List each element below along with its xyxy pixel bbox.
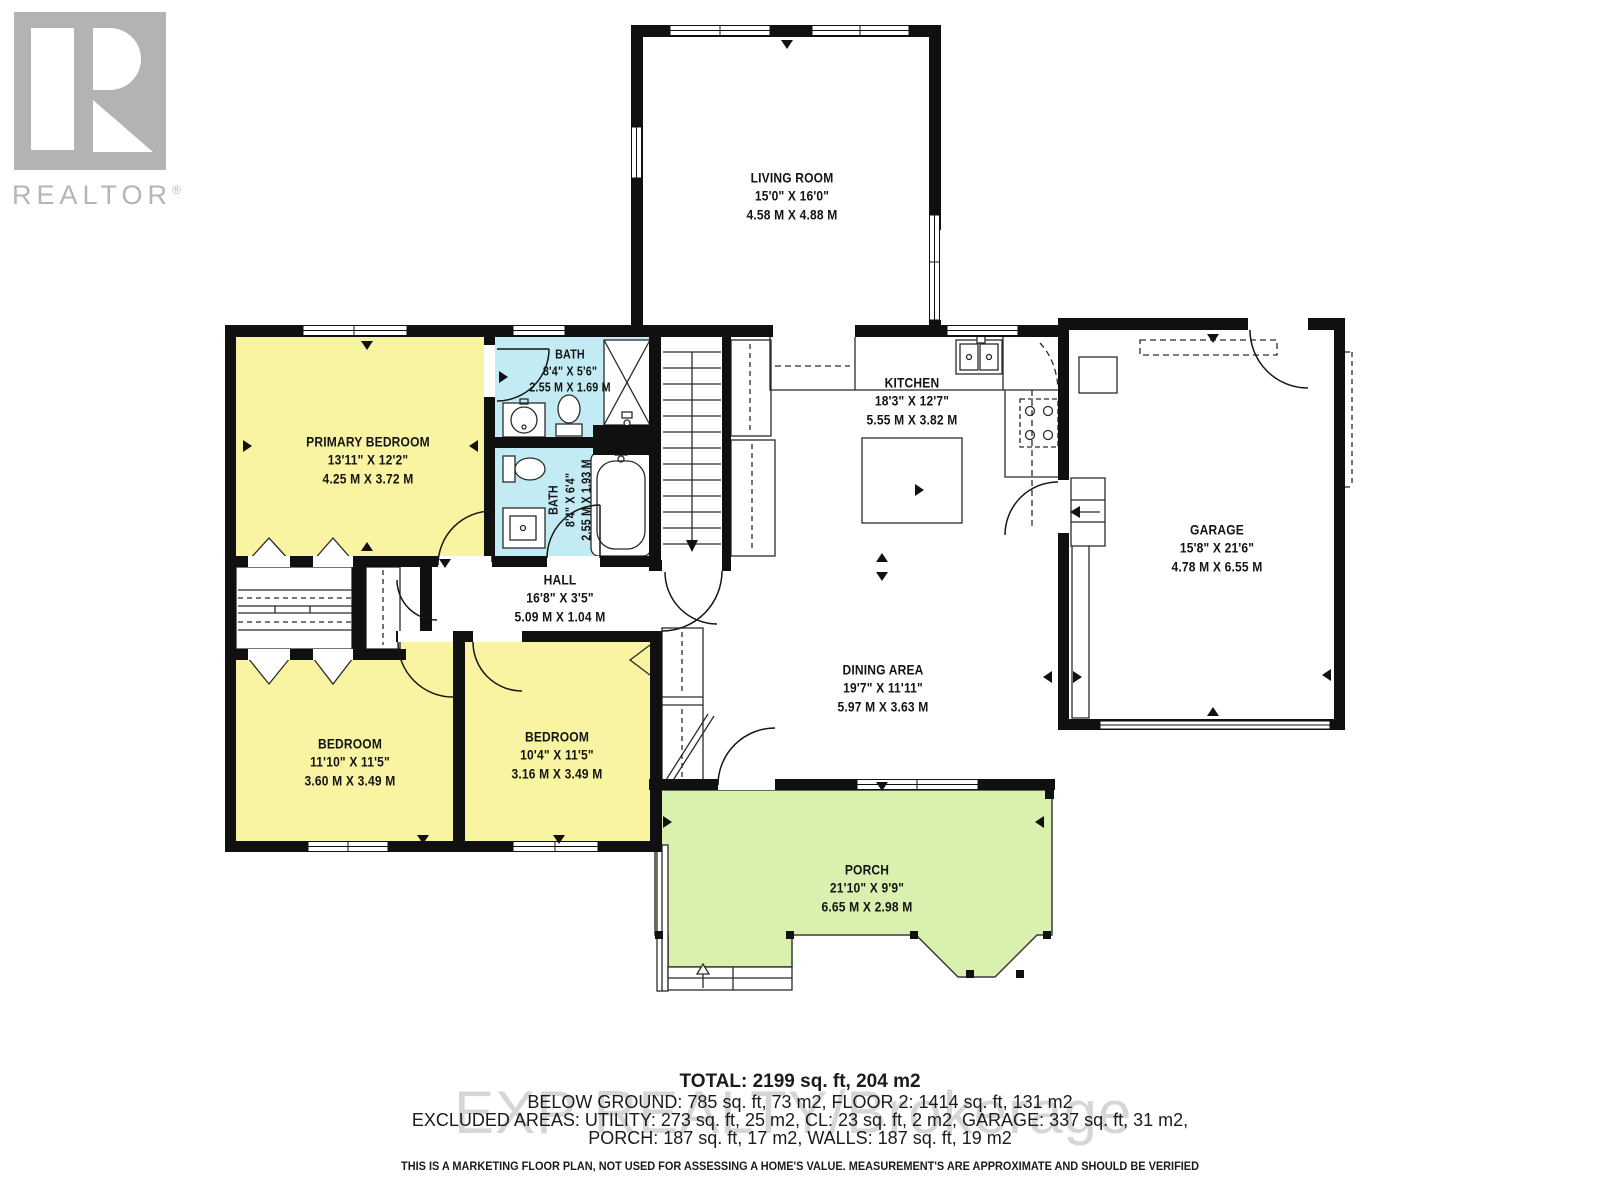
door-swing-icon (718, 728, 775, 785)
room-label-bath-lower: BATH 8'4" X 6'4" 2.55 M X 1.93 M (545, 459, 595, 540)
room-label-porch: PORCH 21'10" X 9'9" 6.65 M X 2.98 M (822, 860, 913, 915)
registered-mark: ® (172, 183, 181, 197)
room-dims-metric: 4.25 M X 3.72 M (306, 469, 430, 487)
room-name: HALL (515, 570, 606, 588)
room-name: PRIMARY BEDROOM (306, 432, 430, 450)
door-swing-icon (1005, 482, 1058, 535)
room-dims-metric: 2.55 M X 1.93 M (578, 459, 595, 540)
room-dims-metric: 4.78 M X 6.55 M (1172, 557, 1263, 575)
room-name: BATH (529, 346, 610, 363)
toilet-icon (503, 456, 545, 482)
island-icon (862, 438, 962, 523)
realtor-word-text: REALTOR (12, 180, 172, 210)
room-dims-imperial: 15'0" X 16'0" (747, 187, 838, 205)
room-name: GARAGE (1172, 520, 1263, 538)
window-icon (513, 842, 598, 852)
room-label-dining-area: DINING AREA 19'7" X 11'11" 5.97 M X 3.63… (838, 660, 929, 715)
window-icon (812, 26, 909, 36)
room-dims-imperial: 19'7" X 11'11" (838, 679, 929, 697)
stove-icon (1020, 399, 1058, 447)
room-dims-imperial: 8'4" X 6'4" (562, 459, 579, 540)
window-icon (308, 842, 388, 852)
realtor-logo-icon (14, 12, 166, 170)
water-heater-icon (1079, 357, 1117, 393)
room-label-kitchen: KITCHEN 18'3" X 12'7" 5.55 M X 3.82 M (867, 373, 958, 428)
door-swing-icon (662, 571, 722, 631)
window-icon (930, 215, 940, 320)
room-dims-metric: 3.16 M X 3.49 M (512, 764, 603, 782)
room-dims-imperial: 8'4" X 5'6" (529, 363, 610, 380)
sink-icon (503, 508, 545, 548)
window-icon (947, 326, 1018, 336)
room-dims-imperial: 15'8" X 21'6" (1172, 539, 1263, 557)
room-dims-imperial: 13'11" X 12'2" (306, 451, 430, 469)
door-swing-icon (1250, 330, 1308, 388)
garage-steps-icon (1070, 478, 1105, 546)
porch-steps-icon (668, 964, 792, 990)
room-name: BATH (545, 459, 562, 540)
pantry-shelves (731, 340, 775, 556)
room-label-hall: HALL 16'8" X 3'5" 5.09 M X 1.04 M (515, 570, 606, 625)
kitchen-fixtures (770, 334, 1058, 528)
room-label-living-room: LIVING ROOM 15'0" X 16'0" 4.58 M X 4.88 … (747, 168, 838, 223)
room-label-primary-bedroom: PRIMARY BEDROOM 13'11" X 12'2" 4.25 M X … (306, 432, 430, 487)
window-icon (513, 326, 565, 336)
window-icon (670, 26, 770, 36)
floor-plan-page: LIVING ROOM 15'0" X 16'0" 4.58 M X 4.88 … (0, 0, 1600, 1200)
room-dims-imperial: 16'8" X 3'5" (515, 589, 606, 607)
realtor-wordmark: REALTOR® (12, 180, 181, 211)
room-label-bedroom-right: BEDROOM 10'4" X 11'5" 3.16 M X 3.49 M (512, 727, 603, 782)
garage-door-icon (1100, 721, 1330, 729)
room-dims-metric: 6.65 M X 2.98 M (822, 897, 913, 915)
total-area-text: TOTAL: 2199 sq. ft, 204 m2 (0, 1071, 1600, 1093)
window-icon (303, 326, 407, 336)
room-dims-imperial: 11'10" X 11'5" (305, 753, 396, 771)
room-dims-metric: 3.60 M X 3.49 M (305, 771, 396, 789)
door-swing-icon (665, 572, 717, 624)
room-name: LIVING ROOM (747, 168, 838, 186)
toilet-icon (556, 395, 582, 436)
room-dims-metric: 5.55 M X 3.82 M (867, 410, 958, 428)
room-dims-metric: 5.09 M X 1.04 M (515, 607, 606, 625)
room-name: KITCHEN (867, 373, 958, 391)
room-dims-metric: 2.55 M X 1.69 M (529, 379, 610, 396)
room-dims-metric: 4.58 M X 4.88 M (747, 205, 838, 223)
shower-icon (604, 340, 650, 426)
room-label-bedroom-left: BEDROOM 11'10" X 11'5" 3.60 M X 3.49 M (305, 734, 396, 789)
kitchen-sink-icon (956, 334, 1002, 374)
sink-icon (503, 399, 545, 437)
stairs-icon (663, 352, 721, 552)
room-name: DINING AREA (838, 660, 929, 678)
area-breakdown-line3: PORCH: 187 sq. ft, 17 m2, WALLS: 187 sq.… (0, 1128, 1600, 1149)
dining-closet (662, 628, 714, 782)
room-dims-imperial: 21'10" X 9'9" (822, 879, 913, 897)
room-dims-imperial: 10'4" X 11'5" (512, 746, 603, 764)
room-dims-metric: 5.97 M X 3.63 M (838, 697, 929, 715)
disclaimer-text: THIS IS A MARKETING FLOOR PLAN, NOT USED… (40, 1161, 1560, 1173)
window-icon (632, 127, 642, 178)
room-label-garage: GARAGE 15'8" X 21'6" 4.78 M X 6.55 M (1172, 520, 1263, 575)
room-dims-imperial: 18'3" X 12'7" (867, 392, 958, 410)
room-label-bath-upper: BATH 8'4" X 5'6" 2.55 M X 1.69 M (529, 346, 610, 396)
room-name: BEDROOM (305, 734, 396, 752)
room-name: PORCH (822, 860, 913, 878)
window-icon (857, 780, 978, 790)
room-name: BEDROOM (512, 727, 603, 745)
